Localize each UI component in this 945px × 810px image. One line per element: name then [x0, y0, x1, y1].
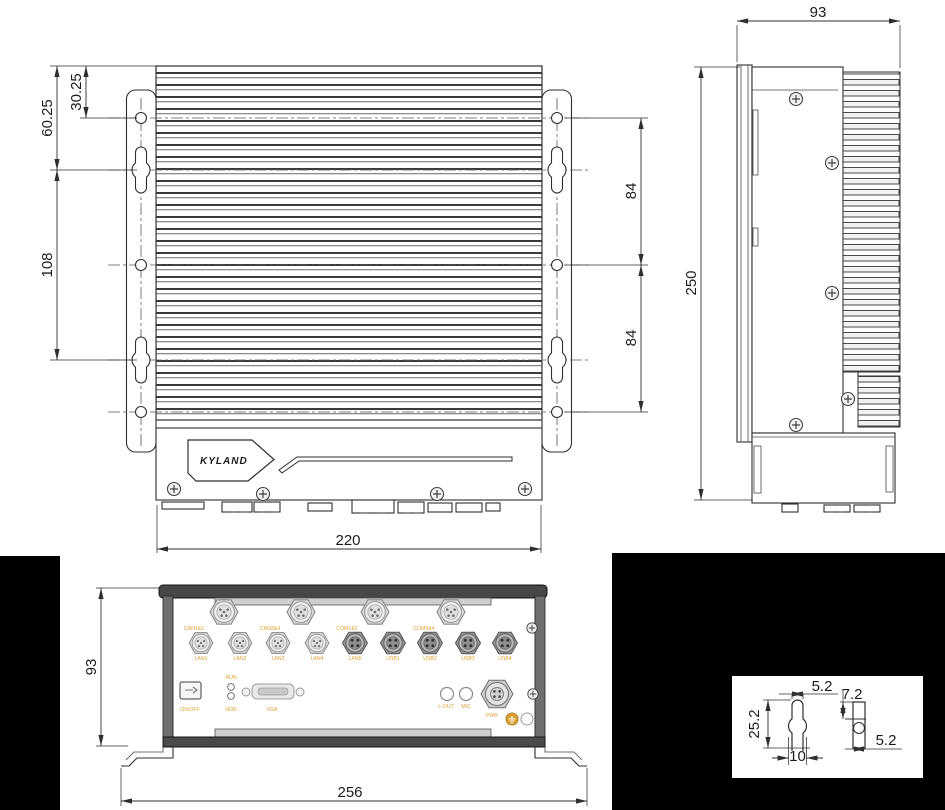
port-label: LAN2 [234, 656, 247, 662]
run-led-label: RUN [225, 675, 236, 681]
vga-screw-ear [296, 688, 304, 696]
dim-5-2-side: 5.2 [876, 732, 897, 749]
bottom-wall-right [535, 596, 545, 738]
drawing-canvas: KYLAND 30.25 60.2 [0, 0, 945, 810]
dim-108: 108 [39, 252, 56, 277]
kyland-logo-text: KYLAND [200, 456, 248, 467]
mount-hole [136, 260, 147, 271]
mount-hole [136, 113, 147, 124]
bottom-top-cap [159, 585, 547, 598]
side-bracket-plate [737, 65, 752, 442]
side-screw [790, 419, 803, 432]
bottom-wall-left [163, 596, 173, 738]
port-label: USB2 [423, 656, 437, 662]
power-switch [180, 682, 201, 699]
port-label: LAN5 [349, 656, 362, 662]
line-out-jack [441, 688, 454, 701]
dim-25-2: 25.2 [746, 709, 763, 738]
dim-256: 256 [337, 784, 362, 801]
dim-93-depth: 93 [810, 4, 827, 21]
port-label: USB1 [386, 656, 400, 662]
panel-screw [431, 488, 444, 501]
hdd-led-label: HDD [225, 707, 236, 713]
port-label: COM1&2 [336, 626, 357, 632]
panel-screw [257, 488, 270, 501]
bottom-connector-row2: LAN1 LAN2 LAN3 LAN4 LAN5 USB1 USB2 USB3 … [189, 632, 517, 662]
side-screw [790, 93, 803, 106]
side-screw [842, 393, 855, 406]
panel-screw [519, 483, 532, 496]
black-panel-left [0, 556, 60, 810]
mic-jack [460, 688, 473, 701]
port-label: COM3&4 [413, 626, 434, 632]
front-heatsink-fins [156, 66, 542, 420]
bottom-bottom-cap [163, 737, 545, 747]
power-switch-label: ON/OFF [180, 707, 200, 713]
side-fins-lower [858, 376, 900, 427]
side-screw [826, 157, 839, 170]
bottom-screw [527, 623, 537, 633]
ground-terminal-icon [506, 713, 518, 725]
vga-label: VGA [267, 707, 278, 713]
port-label: CAN3&4 [260, 626, 280, 632]
mechanical-drawing-page: KYLAND 30.25 60.2 [0, 0, 945, 810]
side-panel-section [752, 433, 895, 503]
mount-hole [552, 260, 563, 271]
dim-220: 220 [335, 532, 360, 549]
port-label: CAN1&2 [184, 626, 204, 632]
side-screw [826, 287, 839, 300]
dim-10: 10 [789, 748, 806, 765]
dim-84-lower: 84 [623, 330, 640, 347]
dim-250: 250 [683, 270, 700, 295]
panel-screw [168, 483, 181, 496]
vga-screw-ear [242, 688, 250, 696]
side-fins-upper [843, 72, 900, 372]
side-connector-stubs [782, 504, 880, 512]
dim-5-2-slot: 5.2 [812, 678, 833, 695]
port-label: LAN3 [272, 656, 285, 662]
ground-screw-hole [521, 713, 533, 725]
line-out-label: L-OUT [438, 704, 454, 710]
dim-60-25: 60.25 [39, 99, 56, 137]
dim-30-25: 30.25 [68, 73, 85, 111]
port-label: USB4 [498, 656, 512, 662]
mount-hole [552, 407, 563, 418]
port-label: LAN1 [195, 656, 208, 662]
power-connector-label: PWR [486, 713, 498, 719]
bottom-screw [528, 689, 538, 699]
mount-hole [136, 407, 147, 418]
dim-93-height: 93 [83, 659, 100, 676]
run-led [228, 684, 235, 691]
port-label: LAN4 [311, 656, 324, 662]
dim-7-2: 7.2 [842, 686, 863, 703]
port-label: USB3 [461, 656, 475, 662]
mount-hole [552, 113, 563, 124]
dim-84-upper: 84 [623, 183, 640, 200]
mic-label: MIC [461, 704, 471, 710]
side-body [752, 67, 843, 433]
hdd-led [228, 693, 235, 700]
